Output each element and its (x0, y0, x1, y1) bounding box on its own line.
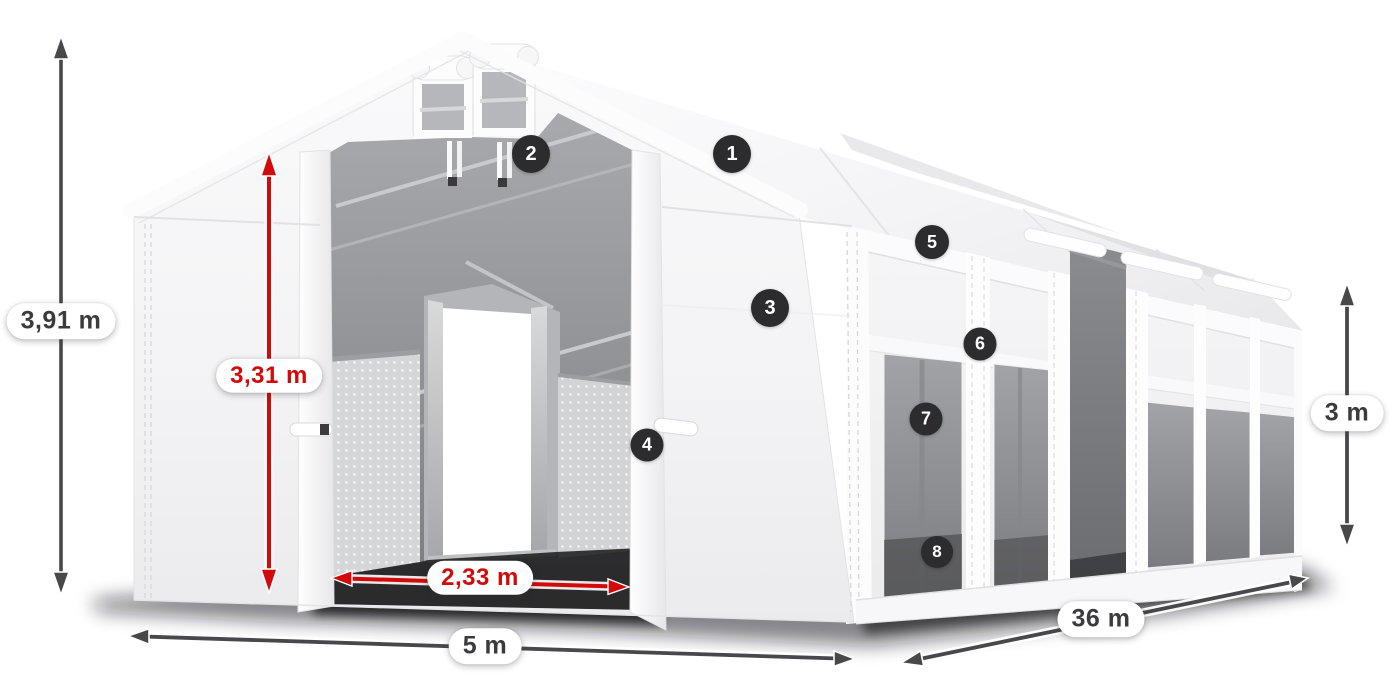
dimension-label-width: 5 m (449, 628, 522, 664)
dimension-label-length: 36 m (1058, 601, 1145, 637)
dimension-label-total-height: 3,91 m (7, 303, 116, 339)
tent-illustration (0, 0, 1400, 700)
callout-badge-6[interactable]: 6 (964, 328, 997, 361)
dimension-label-inner-height: 3,31 m (216, 359, 322, 393)
callout-badge-3[interactable]: 3 (751, 289, 789, 327)
callout-badge-8[interactable]: 8 (921, 536, 953, 568)
callout-badge-1[interactable]: 1 (713, 135, 751, 173)
callout-badge-2[interactable]: 2 (512, 135, 550, 173)
dimension-label-side-height: 3 m (1311, 395, 1384, 431)
callout-badge-7[interactable]: 7 (910, 403, 943, 436)
side-opening (1070, 240, 1126, 586)
front-door-opening (320, 113, 646, 610)
tent-dimensions-diagram: 3,91 m 3,31 m 2,33 m 5 m 36 m 3 m 1 2 3 … (0, 0, 1400, 700)
dimension-label-entrance-width: 2,33 m (427, 561, 533, 595)
callout-badge-5[interactable]: 5 (915, 225, 949, 259)
callout-badge-4[interactable]: 4 (631, 429, 664, 462)
